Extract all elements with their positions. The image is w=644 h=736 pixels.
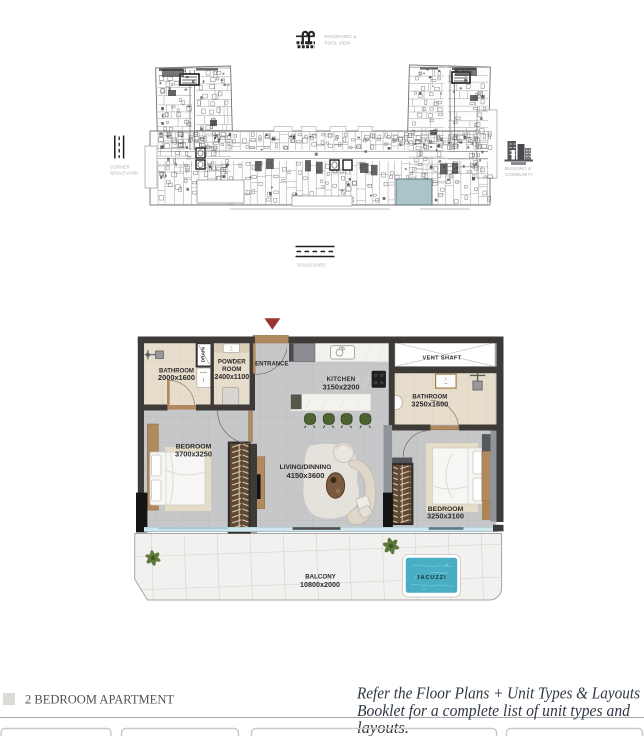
svg-text:DRAIN: DRAIN: [200, 347, 206, 363]
svg-text:3700x3250: 3700x3250: [175, 449, 212, 458]
svg-text:3150x2200: 3150x2200: [323, 382, 360, 391]
svg-text:COMMUNITY: COMMUNITY: [505, 172, 533, 177]
svg-text:POWDER: POWDER: [218, 359, 246, 366]
svg-text:3250x3100: 3250x3100: [427, 512, 464, 521]
svg-text:BOULEVARD: BOULEVARD: [110, 171, 139, 176]
svg-text:2400x1100: 2400x1100: [214, 374, 249, 381]
svg-text:layouts.: layouts.: [357, 718, 409, 736]
svg-text:LIVING/DINNING: LIVING/DINNING: [280, 464, 332, 471]
svg-text:4150x3600: 4150x3600: [286, 471, 324, 480]
svg-text:POOL VIEW: POOL VIEW: [325, 41, 351, 46]
svg-text:ENTRANCE: ENTRANCE: [255, 362, 288, 368]
svg-text:10800x2000: 10800x2000: [300, 580, 340, 589]
svg-text:BUILDING &: BUILDING &: [505, 166, 531, 171]
svg-text:2000x1600: 2000x1600: [158, 373, 195, 382]
svg-text:CORNER: CORNER: [110, 165, 131, 170]
svg-text:2 BEDROOM APARTMENT: 2 BEDROOM APARTMENT: [25, 693, 174, 707]
svg-text:PANORAMIC &: PANORAMIC &: [325, 34, 357, 39]
svg-text:BOULEVARD: BOULEVARD: [298, 263, 327, 268]
svg-text:3250x1600: 3250x1600: [411, 400, 448, 409]
svg-text:Refer the Floor Plans + Unit T: Refer the Floor Plans + Unit Types & Lay…: [356, 684, 640, 703]
svg-text:JACUZZI: JACUZZI: [417, 575, 447, 581]
svg-text:Booklet for a complete list of: Booklet for a complete list of unit type…: [357, 701, 631, 720]
svg-text:VENT SHAFT: VENT SHAFT: [422, 355, 461, 361]
svg-text:ROOM: ROOM: [222, 366, 241, 373]
